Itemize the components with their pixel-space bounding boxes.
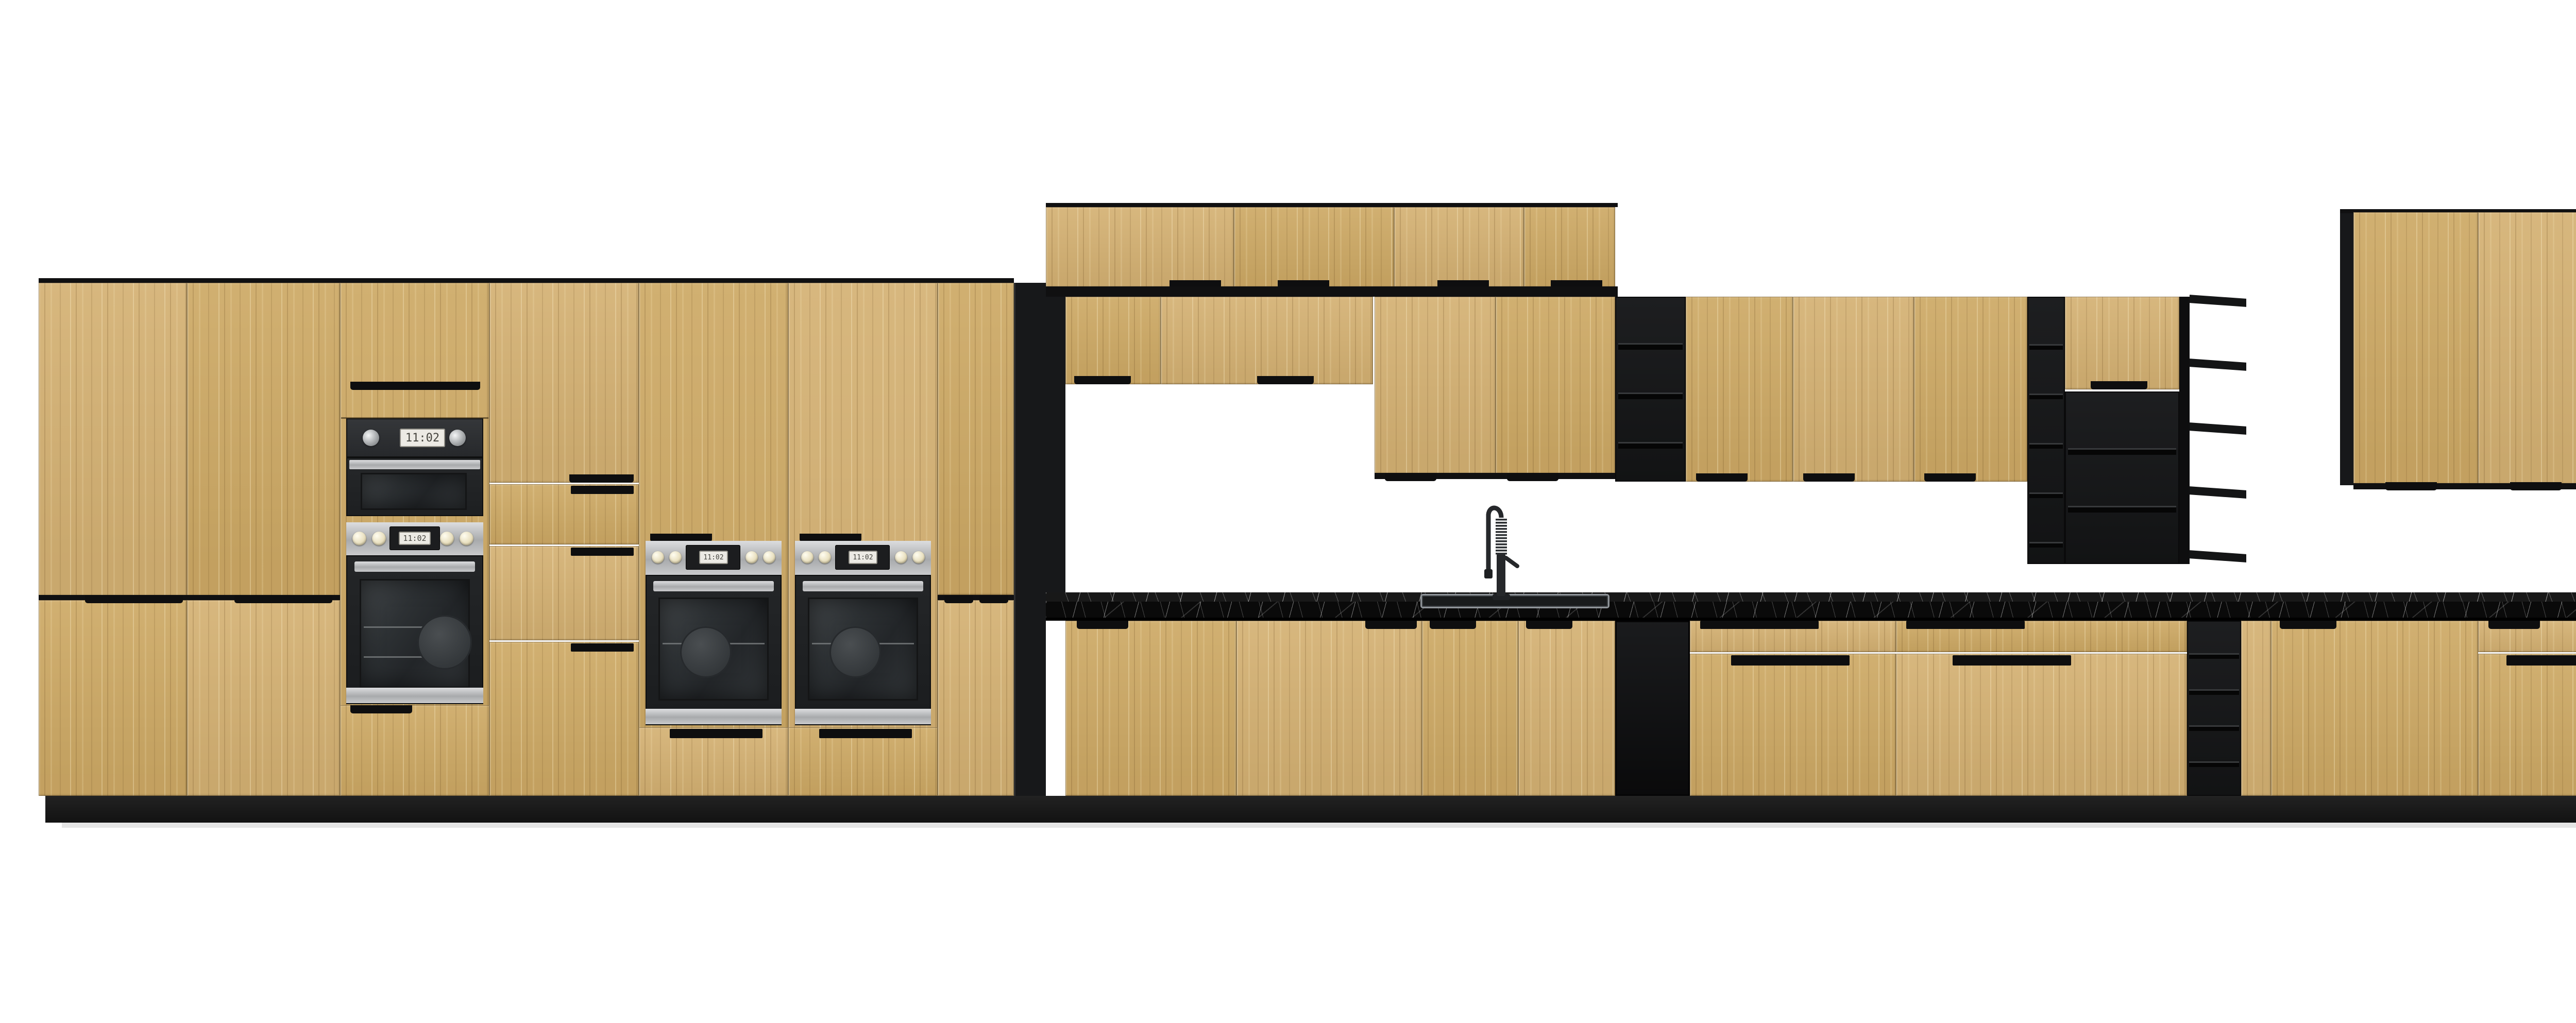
- baking-tray: [417, 615, 472, 670]
- base-deep-door[interactable]: [1690, 654, 1896, 796]
- oven-knob[interactable]: [669, 551, 682, 564]
- sink-base-door[interactable]: [1518, 621, 1615, 796]
- drawer-handle: [571, 548, 634, 556]
- mid-oven-b-time: 11:02: [853, 554, 873, 561]
- oven-knob[interactable]: [819, 551, 831, 564]
- compact-oven-display: 11:02: [400, 429, 445, 447]
- tall-cabinet-door[interactable]: [39, 600, 187, 796]
- recessed-handle: [85, 595, 183, 603]
- base-filler-panel: [2241, 621, 2271, 796]
- recessed-handle: [1257, 376, 1314, 384]
- wall-door-short[interactable]: [1065, 297, 1161, 384]
- oven-knob[interactable]: [912, 551, 925, 564]
- recessed-handle: [2385, 482, 2437, 490]
- corner-shelf-unit[interactable]: [2179, 297, 2247, 564]
- open-shelf-unit[interactable]: [2065, 391, 2179, 564]
- recessed-handle: [2510, 482, 2562, 490]
- tower-lower-door[interactable]: [340, 705, 489, 796]
- floor-shadow: [62, 823, 2576, 828]
- oven-handle[interactable]: [803, 581, 923, 591]
- tall-cabinet-door[interactable]: [489, 283, 639, 483]
- recessed-handle: [1696, 473, 1748, 482]
- oven-window: [658, 598, 769, 701]
- oven-control-module: 11:02: [835, 545, 890, 570]
- tall-oven-control-panel: 11:02: [346, 522, 483, 555]
- compact-oven-door[interactable]: [346, 457, 483, 516]
- compact-oven-time: 11:02: [405, 432, 439, 445]
- recessed-handle: [1526, 621, 1572, 629]
- tall-cabinet-door[interactable]: [187, 283, 340, 596]
- faucet[interactable]: [1466, 502, 1533, 601]
- wall-door[interactable]: [1046, 207, 1234, 287]
- tall-cabinet-door[interactable]: [187, 600, 340, 796]
- oven-handle[interactable]: [653, 581, 774, 591]
- open-shelf-column[interactable]: [2027, 297, 2065, 564]
- recessed-handle: [350, 382, 480, 390]
- baking-tray: [829, 626, 881, 678]
- recessed-handle: [1385, 473, 1436, 481]
- tall-cabinet-door[interactable]: [938, 600, 1014, 796]
- wall-door[interactable]: [1524, 207, 1615, 287]
- drawer-handle: [571, 643, 634, 652]
- wall-door-short[interactable]: [2065, 297, 2179, 389]
- mid-oven-b-display: 11:02: [849, 551, 877, 564]
- drawer-front[interactable]: [489, 642, 639, 796]
- oven-control-module: 11:02: [686, 545, 740, 570]
- wall-door-tall[interactable]: [1793, 297, 1914, 482]
- wall-door-tall[interactable]: [1686, 297, 1793, 482]
- wall-side-edge: [2340, 213, 2353, 485]
- drawer-handle: [670, 729, 762, 738]
- base-door[interactable]: [2271, 621, 2478, 796]
- open-shelf-unit[interactable]: [1615, 297, 1686, 482]
- drawer-front[interactable]: [489, 546, 639, 640]
- oven-knob[interactable]: [745, 551, 758, 564]
- base-door[interactable]: [1236, 621, 1422, 796]
- recessed-handle: [569, 474, 634, 483]
- sink-base-door[interactable]: [1422, 621, 1518, 796]
- wall-door-short[interactable]: [1161, 297, 1373, 384]
- oven-knob[interactable]: [460, 532, 473, 545]
- wall-shelf-lip: [1046, 286, 1618, 297]
- oven-bottom-trim: [795, 709, 931, 724]
- tall-cabinet-door[interactable]: [39, 283, 187, 596]
- compact-oven-handle[interactable]: [349, 460, 480, 469]
- wall-door[interactable]: [1394, 207, 1524, 287]
- recessed-handle: [1077, 621, 1128, 629]
- oven-knob[interactable]: [372, 532, 386, 545]
- drawer-handle: [1906, 621, 2025, 629]
- countertop-edge: [1046, 602, 2576, 618]
- open-base-column[interactable]: [2187, 621, 2241, 796]
- drawer-handle: [819, 729, 912, 738]
- oven-control-module: 11:02: [389, 526, 440, 550]
- recessed-handle: [2091, 381, 2147, 389]
- recessed-handle: [1074, 376, 1131, 384]
- compact-oven-knob[interactable]: [449, 430, 466, 446]
- compact-oven-window: [361, 473, 467, 510]
- wall-door-tall[interactable]: [1375, 297, 1496, 474]
- oven-knob[interactable]: [763, 551, 775, 564]
- recessed-handle: [1803, 473, 1855, 482]
- oven-knob[interactable]: [895, 551, 907, 564]
- drawer-handle: [571, 486, 634, 494]
- tall-oven-display: 11:02: [399, 532, 431, 545]
- base-door[interactable]: [1065, 621, 1236, 796]
- door-handle: [2506, 655, 2576, 666]
- door-handle: [1731, 655, 1850, 666]
- countertop-surface[interactable]: [1046, 592, 2576, 602]
- mid-oven-a-display: 11:02: [699, 551, 728, 564]
- wall-door-tall[interactable]: [1496, 297, 1615, 474]
- oven-knob[interactable]: [352, 532, 366, 545]
- oven-handle[interactable]: [354, 561, 475, 572]
- tall-cabinet-door[interactable]: [938, 283, 1014, 595]
- tall-oven-door[interactable]: [346, 555, 483, 704]
- recessed-handle: [2488, 621, 2540, 629]
- mid-oven-control-panel: 11:02: [646, 541, 782, 575]
- base-deep-door[interactable]: [1896, 654, 2187, 796]
- recessed-handle: [1924, 473, 1976, 482]
- oven-knob[interactable]: [801, 551, 814, 564]
- oven-bottom-trim: [346, 688, 483, 703]
- door-handle: [1953, 655, 2071, 666]
- wall-door[interactable]: [1234, 207, 1394, 287]
- recessed-handle: [1430, 621, 1476, 629]
- mid-oven-door[interactable]: [646, 575, 782, 725]
- recessed-handle: [350, 705, 412, 713]
- plinth: [45, 796, 2576, 823]
- wall-side-panel: [1046, 297, 1065, 596]
- compact-oven-control-panel: 11:02: [346, 418, 483, 457]
- mid-oven-control-panel: 11:02: [795, 541, 931, 575]
- recessed-handle: [2280, 621, 2336, 629]
- recessed-handle: [1365, 621, 1417, 629]
- wall-top-edge: [1046, 203, 1618, 207]
- drawer-handle: [1700, 621, 1819, 629]
- open-base-cubby[interactable]: [1615, 621, 1690, 796]
- oven-knob[interactable]: [652, 551, 664, 564]
- mid-oven-a-time: 11:02: [703, 554, 723, 561]
- tall-side-panel: [1014, 283, 1046, 796]
- oven-window: [360, 579, 470, 688]
- oven-knob[interactable]: [440, 532, 454, 545]
- wall-door-tall[interactable]: [1914, 297, 2027, 482]
- kitchen-elevation: 11:02 11:02: [0, 0, 2576, 1023]
- recessed-handle: [234, 595, 332, 603]
- wall-door-tall[interactable]: [2478, 212, 2576, 484]
- recessed-handle: [1507, 473, 1558, 481]
- recessed-handle: [979, 595, 1008, 603]
- wall-door-tall[interactable]: [2353, 212, 2478, 484]
- compact-oven-knob[interactable]: [363, 430, 379, 446]
- baking-tray: [680, 626, 732, 678]
- recessed-handle: [944, 595, 973, 603]
- base-deep-door[interactable]: [2478, 654, 2576, 796]
- tall-oven-time: 11:02: [403, 534, 426, 543]
- mid-oven-door[interactable]: [795, 575, 931, 725]
- oven-bottom-trim: [646, 709, 782, 724]
- oven-window: [808, 598, 918, 701]
- tall-run-top-edge: [39, 278, 1014, 283]
